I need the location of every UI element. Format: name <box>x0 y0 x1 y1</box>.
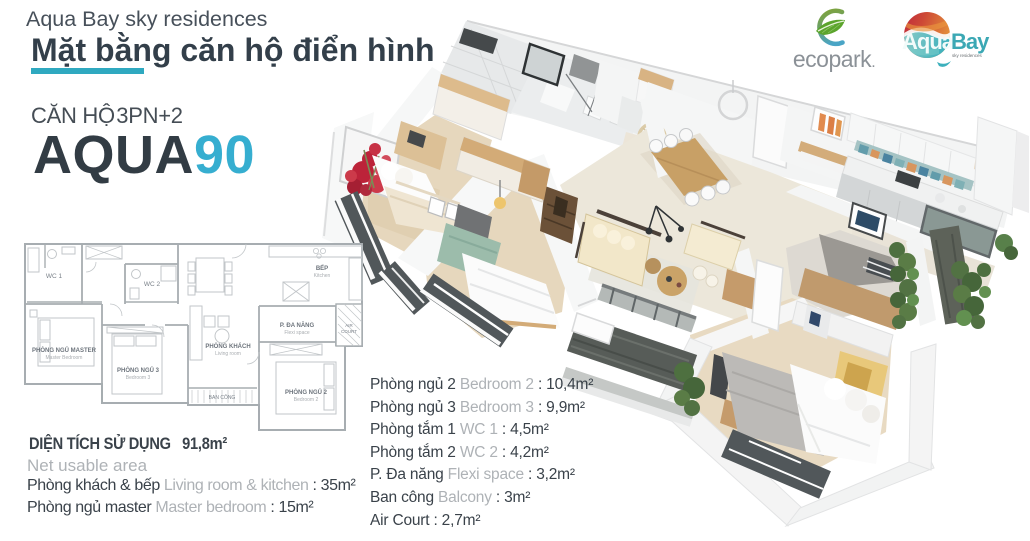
svg-text:Aqua: Aqua <box>902 29 955 54</box>
svg-text:Bedroom 2: Bedroom 2 <box>294 397 319 403</box>
svg-text:sky residences: sky residences <box>952 53 983 58</box>
svg-text:AIR: AIR <box>345 323 353 328</box>
svg-text:P. ĐA NĂNG: P. ĐA NĂNG <box>280 322 315 329</box>
svg-text:COURT: COURT <box>341 329 357 334</box>
svg-text:ecopark.: ecopark. <box>793 46 875 72</box>
svg-text:PHÒNG KHÁCH: PHÒNG KHÁCH <box>205 342 250 350</box>
svg-text:WC 1: WC 1 <box>46 273 63 280</box>
svg-text:PHÒNG NGỦ 2: PHÒNG NGỦ 2 <box>285 388 328 396</box>
svg-text:PHÒNG NGỦ 3: PHÒNG NGỦ 3 <box>117 366 160 374</box>
svg-text:Kitchen: Kitchen <box>314 273 331 279</box>
svg-text:WC 2: WC 2 <box>144 281 161 288</box>
svg-text:Bay: Bay <box>951 29 990 54</box>
svg-text:Living room: Living room <box>215 351 241 357</box>
svg-text:PHÒNG NGỦ MASTER: PHÒNG NGỦ MASTER <box>32 346 97 354</box>
svg-text:Bedroom 3: Bedroom 3 <box>126 375 151 381</box>
svg-text:BAN CÔNG: BAN CÔNG <box>209 394 236 401</box>
svg-text:Flexi space: Flexi space <box>284 330 310 336</box>
svg-text:Master Bedroom: Master Bedroom <box>46 355 83 361</box>
svg-text:BẾP: BẾP <box>316 265 328 272</box>
